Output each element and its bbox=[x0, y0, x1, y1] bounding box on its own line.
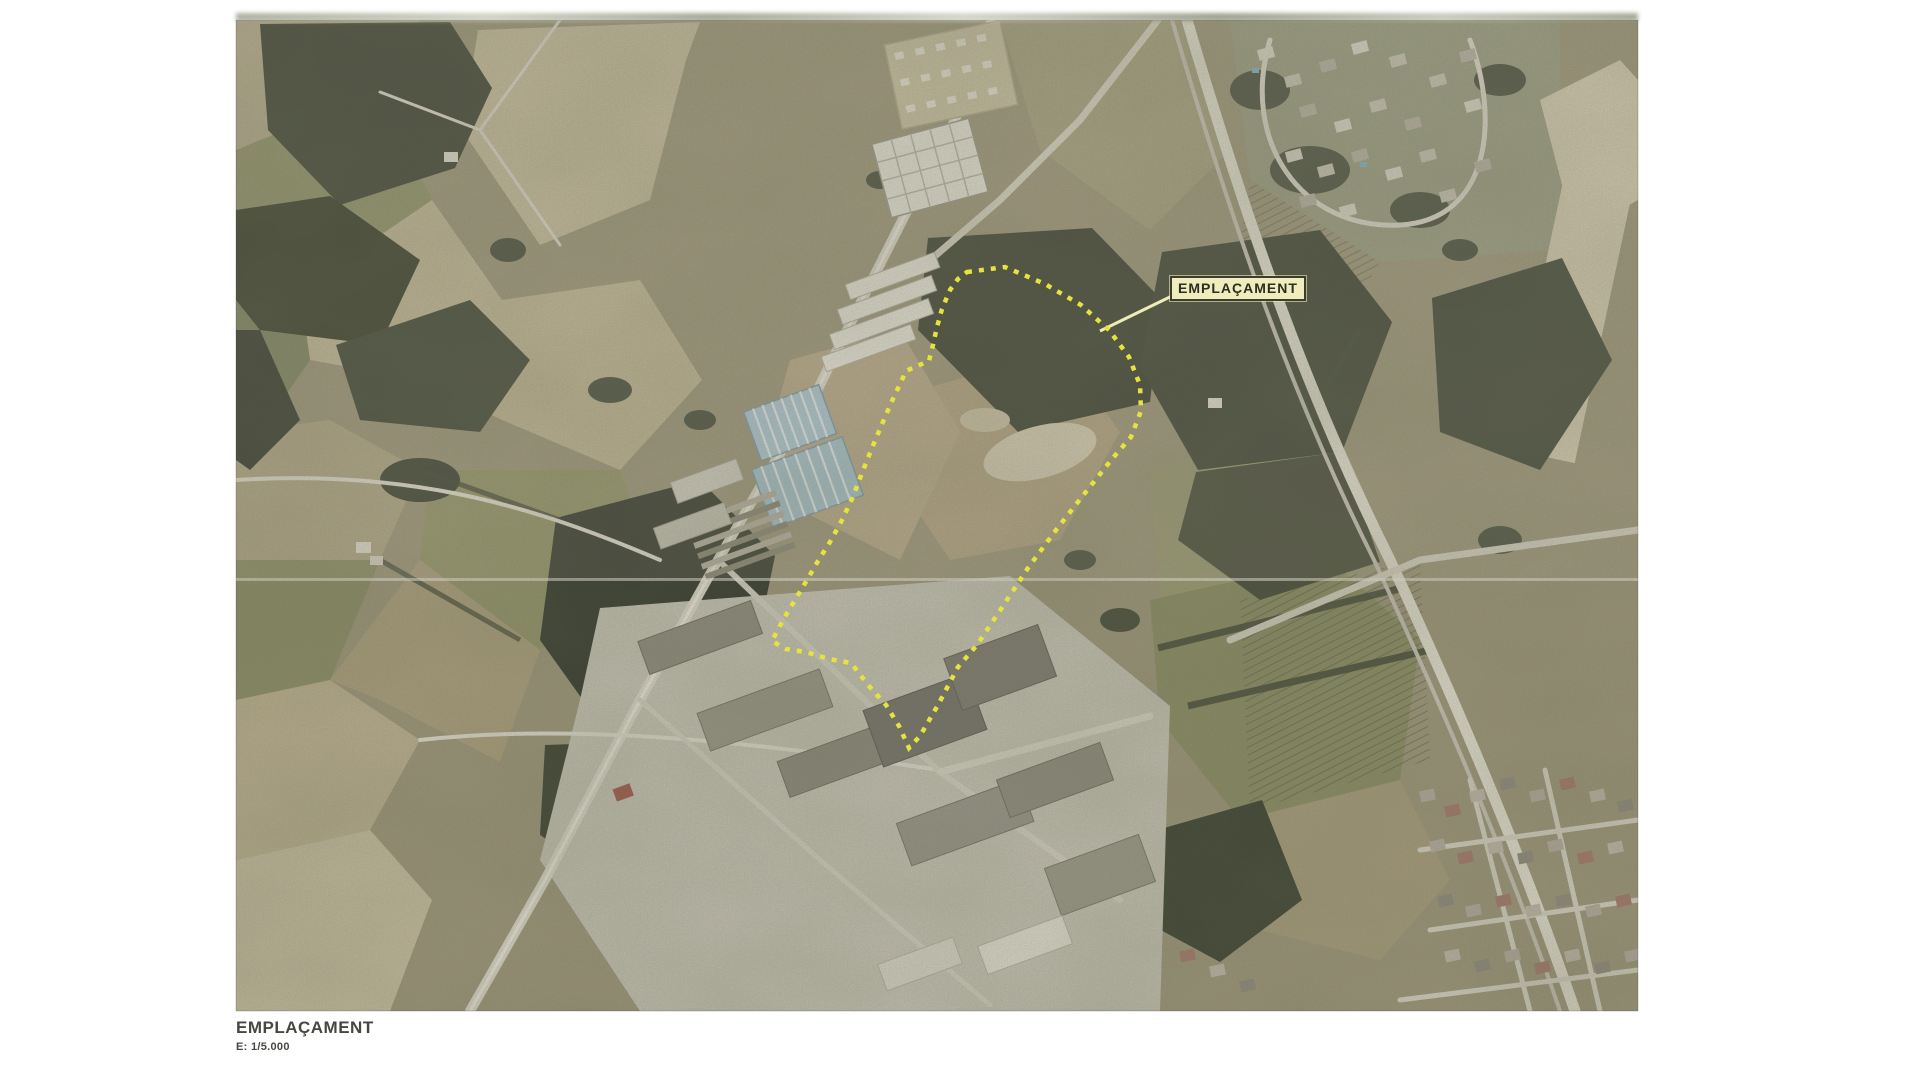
scan-artifact-strip bbox=[236, 13, 1638, 21]
caption-scale: E: 1/5.000 bbox=[236, 1041, 374, 1053]
caption-title: EMPLAÇAMENT bbox=[236, 1018, 374, 1037]
aerial-photo bbox=[0, 0, 1920, 1080]
map-caption: EMPLAÇAMENT E: 1/5.000 bbox=[236, 1018, 374, 1053]
site-label-box: EMPLAÇAMENT bbox=[1170, 276, 1306, 301]
sepia-overlay bbox=[236, 20, 1638, 1011]
document-page: EMPLAÇAMENT EMPLAÇAMENT E: 1/5.000 bbox=[0, 0, 1920, 1080]
site-label-text: EMPLAÇAMENT bbox=[1178, 280, 1298, 296]
aerial-photo-content bbox=[236, 20, 1654, 1011]
